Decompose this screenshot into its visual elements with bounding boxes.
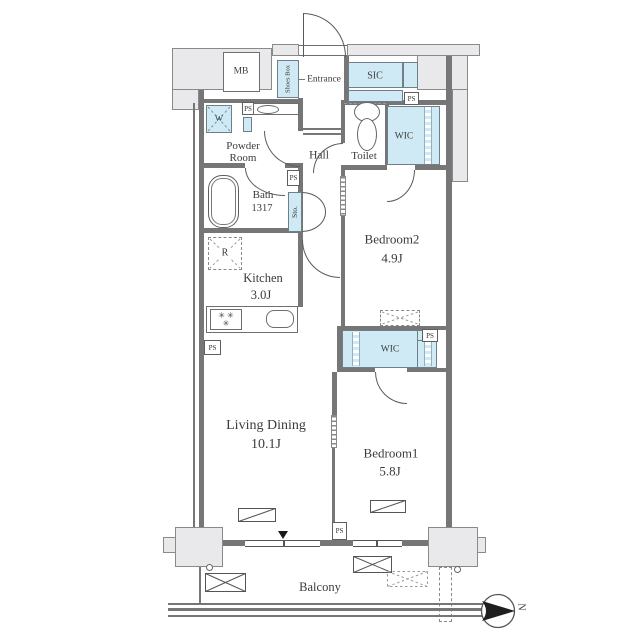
pipe-space-box: PS	[422, 329, 438, 342]
dashed-x-icon	[381, 311, 419, 325]
drain-pipe-strip	[439, 567, 452, 622]
vanity-sink-bowl	[257, 105, 279, 114]
railing-line	[168, 603, 486, 605]
pipe-space-box: PS	[287, 170, 300, 186]
kitchen-label: Kitchen	[243, 271, 283, 285]
drain-cap	[454, 566, 461, 573]
wic-label: WIC	[381, 345, 399, 356]
kitchen-sink	[266, 310, 294, 328]
entrance-leader-line	[299, 79, 305, 80]
storage-door-arc	[302, 192, 326, 212]
closet-hanger-pipe	[424, 342, 432, 366]
balcony-divider-line	[199, 567, 201, 604]
stove-burner-icon: ✳	[223, 320, 230, 328]
ps-label: PS	[290, 174, 298, 182]
ps-label: PS	[408, 95, 416, 103]
bedroom2-label: Bedroom2	[365, 233, 420, 248]
outer-wall-right-strip	[452, 89, 468, 182]
bath-door-arc	[245, 168, 285, 196]
entry-marker-triangle	[278, 531, 288, 539]
pipe-space-box: PS	[204, 340, 221, 355]
living-dining-size-label: 10.1J	[251, 437, 281, 453]
ps-label: PS	[244, 105, 252, 113]
outer-wall-top	[272, 44, 299, 56]
entrance-step-line	[303, 133, 344, 135]
living-dining-label: Living Dining	[226, 418, 306, 434]
wic2-door-arc	[387, 170, 415, 202]
entrance-label: Entrance	[307, 75, 341, 86]
balcony-label: Balcony	[299, 580, 341, 594]
bedroom1-label: Bedroom1	[364, 447, 419, 462]
column-tab	[477, 537, 486, 553]
railing-line	[168, 615, 486, 617]
wall	[446, 56, 452, 540]
balcony-equipment-box	[205, 573, 246, 592]
balcony-equipment-box-dashed	[387, 571, 428, 587]
toilet-bowl	[357, 118, 377, 151]
wall	[204, 540, 446, 546]
compass-icon	[479, 592, 519, 630]
refrigerator-label: R	[220, 247, 231, 258]
wall	[199, 90, 204, 540]
wall	[341, 216, 345, 326]
pipe-space-box: PS	[404, 92, 419, 105]
hall-door-arc	[302, 240, 340, 278]
pipe-space-box: PS	[332, 522, 347, 540]
powder-room-label: Powder	[226, 140, 260, 152]
meter-box-label: MB	[234, 67, 249, 78]
bedroom1-window	[370, 500, 406, 513]
bedroom1-sliding-partition	[331, 415, 337, 448]
powder-room-door-arc	[264, 131, 300, 167]
closet-hanger-pipe	[352, 332, 360, 366]
shoes-box-label: Shoes Box	[284, 62, 291, 96]
toilet-door-arc	[313, 143, 343, 173]
column	[175, 527, 223, 567]
towel-rail-box	[243, 117, 252, 132]
washer-label: W	[215, 114, 223, 124]
ps-label: PS	[426, 332, 434, 340]
sic-label: SIC	[367, 70, 383, 81]
floor-plan: MB Shoes Box Entrance SIC PS W PS	[0, 0, 640, 640]
entrance-step-line	[303, 128, 344, 130]
shoe-in-closet-cell	[403, 62, 418, 88]
bedroom1-balcony-sliding-door	[353, 540, 402, 547]
living-window	[238, 508, 276, 522]
column-tab	[163, 537, 176, 553]
stove: ✳ ✳ ✳	[210, 309, 242, 330]
wall	[332, 372, 337, 415]
drain-cap	[206, 564, 213, 571]
railing-line	[168, 608, 486, 611]
bedroom2-size-label: 4.9J	[381, 252, 402, 267]
wic1-door-arc	[375, 372, 407, 404]
bedroom1-size-label: 5.8J	[379, 465, 400, 480]
wall	[415, 165, 446, 170]
wic-label: WIC	[395, 132, 413, 143]
storage-door-arc	[302, 212, 326, 232]
kitchen-size-label: 3.0J	[251, 288, 272, 302]
bathtub	[208, 175, 239, 228]
ps-label: PS	[336, 527, 344, 535]
sliding-door-tick	[283, 541, 285, 546]
bedroom2-sliding-door	[340, 176, 346, 216]
wall	[341, 105, 345, 143]
wall	[337, 368, 375, 372]
ps-label: PS	[209, 344, 217, 352]
wall	[407, 368, 446, 372]
shoe-in-closet-shelf	[348, 90, 403, 102]
toilet-label: Toilet	[351, 150, 377, 162]
wall	[193, 103, 195, 527]
column	[428, 527, 478, 567]
closet-dashed-area	[380, 310, 420, 326]
wall	[341, 165, 387, 170]
storage-label: Sto.	[291, 206, 299, 218]
outer-wall-corner-block	[417, 55, 468, 90]
bath-size-label: 1317	[252, 203, 273, 215]
closet-divider-line	[417, 330, 418, 368]
bathtub-inner-rim	[211, 178, 236, 225]
closet-hanger-pipe	[424, 107, 432, 164]
sliding-door-tick	[376, 541, 378, 546]
powder-room-label: Room	[230, 152, 257, 164]
compass-north-label: N	[515, 603, 526, 610]
entrance-door-arc	[303, 13, 346, 57]
